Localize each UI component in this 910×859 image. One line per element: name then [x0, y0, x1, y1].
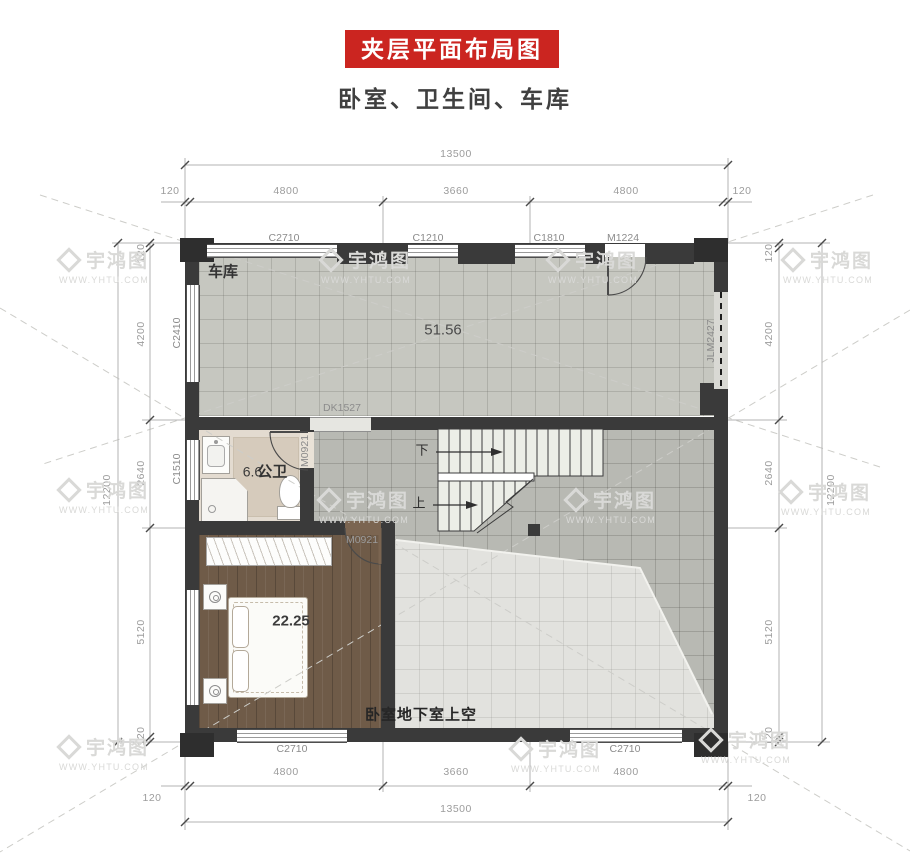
- tag-c2710-top: C2710: [269, 232, 300, 244]
- staircase: [438, 429, 603, 533]
- dim-top-120-l: 120: [160, 185, 179, 197]
- dim-bot-4800-r: 4800: [613, 766, 638, 778]
- tag-m0921-bathroom: M0921: [299, 435, 311, 467]
- dim-top-4800-r: 4800: [613, 185, 638, 197]
- void-edge-line: [396, 540, 712, 714]
- dim-right-2640: 2640: [763, 460, 775, 485]
- dim-right-120-t: 120: [763, 243, 775, 262]
- stair-up-label: 上: [412, 493, 425, 512]
- dim-left-4200: 4200: [135, 321, 147, 346]
- dim-right-4200: 4200: [763, 321, 775, 346]
- dim-top-4800-l: 4800: [273, 185, 298, 197]
- dim-bot-4800-l: 4800: [273, 766, 298, 778]
- dim-right-total: 12200: [825, 474, 837, 506]
- bathroom-label: 6.6 公卫: [243, 461, 287, 482]
- dim-bot-120-r: 120: [747, 792, 766, 804]
- tag-c2710-bottom-left: C2710: [277, 743, 308, 755]
- dim-top-total: 13500: [440, 148, 472, 160]
- garage-label: 车库: [208, 261, 238, 282]
- bathroom-name: 公卫: [257, 461, 287, 482]
- dim-top-3660: 3660: [443, 185, 468, 197]
- tag-m0921-bedroom: M0921: [346, 534, 378, 546]
- stair-down-label: 下: [415, 440, 428, 459]
- dim-bot-total: 13500: [440, 803, 472, 815]
- dim-left-120-t: 120: [135, 243, 147, 262]
- tag-m1224-top: M1224: [607, 232, 639, 244]
- dim-left-5120: 5120: [135, 619, 147, 644]
- dim-bot-3660: 3660: [443, 766, 468, 778]
- entry-door-arc: [608, 257, 646, 295]
- bedroom-area: 22.25: [272, 613, 310, 630]
- dim-left-120-b: 120: [135, 726, 147, 745]
- tag-c1210-top: C1210: [413, 232, 444, 244]
- dim-top-120-r: 120: [732, 185, 751, 197]
- dim-right-5120: 5120: [763, 619, 775, 644]
- tag-dk1527: DK1527: [323, 402, 361, 414]
- tag-jlm2427-right: JLM2427: [705, 319, 717, 362]
- tag-c1510-left: C1510: [171, 454, 183, 485]
- dim-bot-120-l: 120: [142, 792, 161, 804]
- dim-left-total: 12200: [101, 474, 113, 506]
- dim-right-120-b: 120: [763, 726, 775, 745]
- tag-c2410-left: C2410: [171, 318, 183, 349]
- tag-c2710-bottom-right: C2710: [610, 743, 641, 755]
- tag-c1810-top: C1810: [534, 232, 565, 244]
- garage-area: 51.56: [424, 322, 462, 339]
- dim-left-2640: 2640: [135, 460, 147, 485]
- void-label: 卧室地下室上空: [365, 704, 477, 725]
- floor-plan-page: 夹层平面布局图 卧室、卫生间、车库: [0, 0, 910, 859]
